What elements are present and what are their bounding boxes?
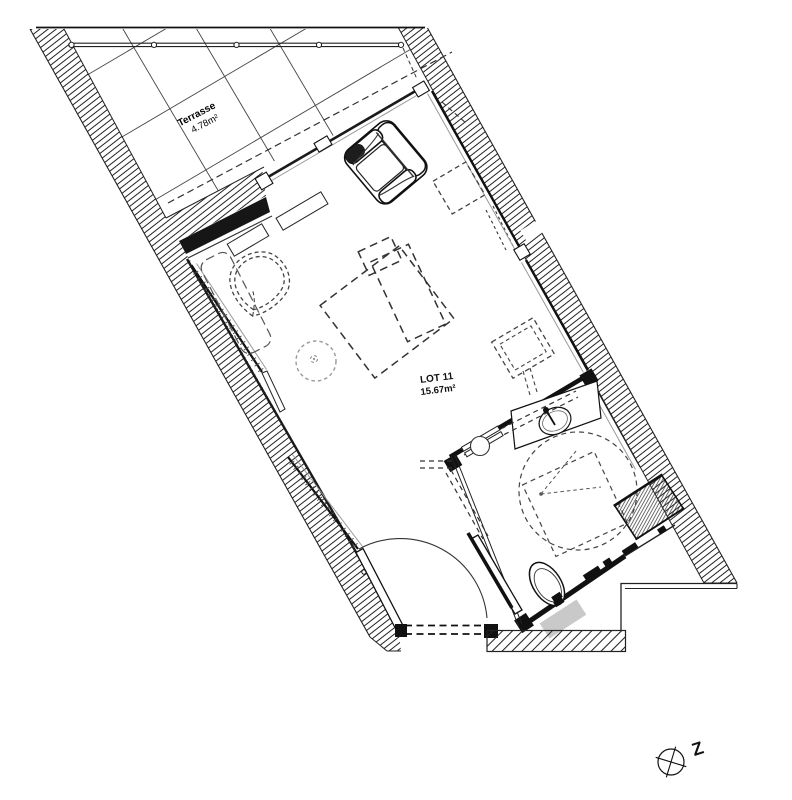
svg-text:Z: Z xyxy=(689,738,706,760)
